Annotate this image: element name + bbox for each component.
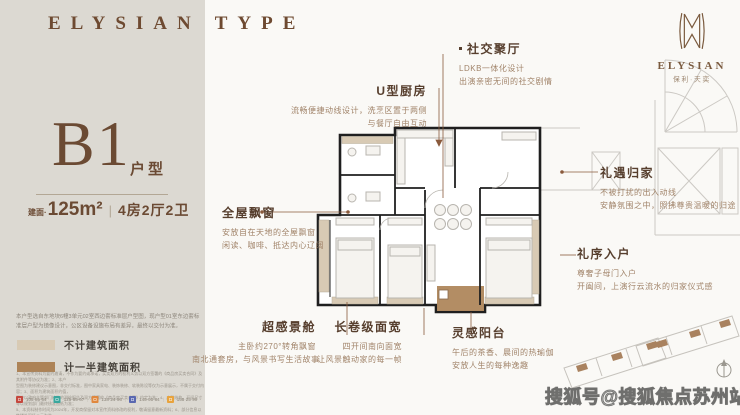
annotation-line: 开阖间，上演行云流水的归家仪式感 bbox=[577, 281, 713, 294]
legend-swatch-brown bbox=[17, 362, 55, 372]
annotation-title: U型厨房 bbox=[285, 82, 427, 99]
annotation-line: 不被打扰的出入动线 bbox=[600, 187, 736, 200]
brand-word-elysian: ELYSIAN bbox=[48, 13, 201, 34]
annotation-line: 四开间南向面宽 bbox=[312, 341, 402, 354]
annotation-title-text: 礼遇归家 bbox=[600, 166, 654, 180]
annotation-entry: 礼序入户 尊奢子母门入户 开阖间，上演行云流水的归家仪式感 bbox=[577, 245, 713, 294]
annotation-title: 灵感阳台 bbox=[452, 324, 554, 341]
chip-separator: | bbox=[125, 397, 126, 402]
chip-separator: | bbox=[87, 397, 88, 402]
annotation-title: 长卷级面宽 bbox=[312, 318, 402, 335]
annotation-bay-window: 全屋飘窗 安放自在天地的全屋飘窗 闲读、咖啡、抵达内心辽阔 bbox=[222, 204, 324, 253]
watermark-text: 搜狐号@搜狐焦点苏州站 bbox=[545, 383, 740, 409]
annotation-line: 闲读、咖啡、抵达内心辽阔 bbox=[222, 240, 324, 253]
social-chip-label: 158·25·99 bbox=[177, 397, 198, 402]
chip-separator: | bbox=[50, 397, 51, 402]
annotation-social-hall: 社交聚厅 LDKB一体化设计 出演亲密无间的社交剧情 bbox=[459, 40, 553, 89]
brand-header: ELYSIANTYPE bbox=[48, 13, 305, 35]
social-icon-orange bbox=[91, 396, 98, 403]
social-chip-label: 145·95·84 bbox=[139, 397, 160, 402]
social-icon-red bbox=[16, 396, 23, 403]
fine-print: 1、本宣传资料为要约邀请，不作为要约或承诺，买卖双方的权利义务以双方签署的《商品… bbox=[16, 371, 204, 415]
annotation-title: 礼遇归家 bbox=[600, 164, 736, 181]
compass-icon bbox=[717, 359, 731, 377]
unit-area-row: 建面· 125m² | 4房2厅2卫 bbox=[28, 199, 198, 221]
annotation-title-text: 社交聚厅 bbox=[467, 42, 521, 56]
social-chip-label: 138·24·96 bbox=[101, 397, 122, 402]
brand-word-type: TYPE bbox=[215, 13, 306, 34]
unit-code: B1 bbox=[52, 112, 131, 176]
bullet-icon bbox=[459, 47, 462, 50]
annotation-line: LDKB一体化设计 bbox=[459, 63, 553, 76]
annotation-body: 流畅便捷动线设计，洗烹区置于两侧 与餐厅自由互动 bbox=[285, 105, 427, 131]
annotation-line: 南北通套房，与风景书写生活故事 bbox=[192, 354, 316, 367]
annotation-body: LDKB一体化设计 出演亲密无间的社交剧情 bbox=[459, 63, 553, 89]
legend-swatch-light bbox=[17, 340, 55, 350]
social-icon-blue bbox=[129, 396, 136, 403]
annotation-line: 尊奢子母门入户 bbox=[577, 268, 713, 281]
social-icon-teal bbox=[54, 396, 61, 403]
logo-cn-name: 保利·天奕 bbox=[656, 75, 727, 84]
unit-divider-line bbox=[36, 194, 168, 195]
area-separator: | bbox=[109, 203, 112, 218]
annotation-line: 出演亲密无间的社交剧情 bbox=[459, 76, 553, 89]
annotation-body: 安放自在天地的全屋飘窗 闲读、咖啡、抵达内心辽阔 bbox=[222, 227, 324, 253]
annotation-title: 超感景舱 bbox=[192, 318, 316, 335]
brand-logo: ELYSIAN 保利·天奕 bbox=[650, 10, 734, 85]
annotation-body: 尊奢子母门入户 开阖间，上演行云流水的归家仪式感 bbox=[577, 268, 713, 294]
annotation-frontage: 长卷级面宽 四开间南向面宽 让风景触动家的每一帧 bbox=[312, 318, 402, 367]
elysian-monogram-icon bbox=[675, 10, 709, 52]
chip-separator: | bbox=[163, 397, 164, 402]
annotation-title: 礼序入户 bbox=[577, 245, 713, 262]
legend-row-excluded: 不计建筑面积 bbox=[17, 337, 141, 352]
annotation-body: 四开间南向面宽 让风景触动家的每一帧 bbox=[312, 341, 402, 367]
annotation-body: 午后的茶香、晨间的热瑜伽 安放人生的每种逸趣 bbox=[452, 347, 554, 373]
fine-print-line: 5、本资料制作时间为2024年，开发商保留对本宣传资料修改的权利，敬请留意最新资… bbox=[16, 407, 204, 415]
social-chip-label: 125·85·67 bbox=[64, 397, 85, 402]
annotation-line: 午后的茶香、晨间的热瑜伽 bbox=[452, 347, 554, 360]
social-icon-yellow bbox=[167, 396, 174, 403]
social-chip-label: 105·85·64 bbox=[26, 397, 47, 402]
legend-label-excluded: 不计建筑面积 bbox=[64, 337, 130, 352]
annotation-view-pod: 超感景舱 主卧约270°转角飘窗 南北通套房，与风景书写生活故事 bbox=[192, 318, 316, 367]
annotation-line: 安静氛围之中，照拂尊贵温暖的归途 bbox=[600, 200, 736, 213]
annotation-homecoming: 礼遇归家 不被打扰的出入动线 安静氛围之中，照拂尊贵温暖的归途 bbox=[600, 164, 736, 213]
annotation-line: 让风景触动家的每一帧 bbox=[312, 354, 402, 367]
fine-print-line: 1、本宣传资料为要约邀请，不作为要约或承诺，买卖双方的权利义务以双方签署的《商品… bbox=[16, 371, 204, 383]
panel-note: 本户型选自东地块6幢3单元02室西边套标准层户型图，现户型01室东边套标准层户型… bbox=[16, 312, 203, 331]
annotation-title: 社交聚厅 bbox=[459, 40, 553, 57]
annotation-kitchen: U型厨房 流畅便捷动线设计，洗烹区置于两侧 与餐厅自由互动 bbox=[285, 82, 427, 131]
logo-name: ELYSIAN bbox=[650, 60, 734, 72]
annotation-line: 安放自在天地的全屋飘窗 bbox=[222, 227, 324, 240]
area-value: 125m² bbox=[48, 199, 103, 221]
social-chip-row: 105·85·64 | 125·85·67 | 138·24·96 | 145·… bbox=[16, 396, 202, 403]
unit-type-label: 户型 bbox=[130, 158, 166, 179]
annotation-body: 主卧约270°转角飘窗 南北通套房，与风景书写生活故事 bbox=[192, 341, 316, 367]
room-layout: 4房2厅2卫 bbox=[118, 200, 189, 220]
annotation-line: 流畅便捷动线设计，洗烹区置于两侧 bbox=[285, 105, 427, 118]
poster-root: ELYSIANTYPE B1 户型 建面· 125m² | 4房2厅2卫 本户型… bbox=[0, 0, 740, 415]
annotation-line: 与餐厅自由互动 bbox=[285, 118, 427, 131]
annotation-balcony: 灵感阳台 午后的茶香、晨间的热瑜伽 安放人生的每种逸趣 bbox=[452, 324, 554, 373]
annotation-body: 不被打扰的出入动线 安静氛围之中，照拂尊贵温暖的归途 bbox=[600, 187, 736, 213]
fine-print-line: 型图为装修建议示意图，非交付标准，图中家具家电、装饰装修、软装陈设等仅为示意展示… bbox=[16, 383, 204, 395]
area-prefix: 建面· bbox=[28, 207, 47, 218]
annotation-line: 主卧约270°转角飘窗 bbox=[192, 341, 316, 354]
annotation-line: 安放人生的每种逸趣 bbox=[452, 360, 554, 373]
washer-box bbox=[439, 290, 448, 299]
annotation-title: 全屋飘窗 bbox=[222, 204, 324, 221]
